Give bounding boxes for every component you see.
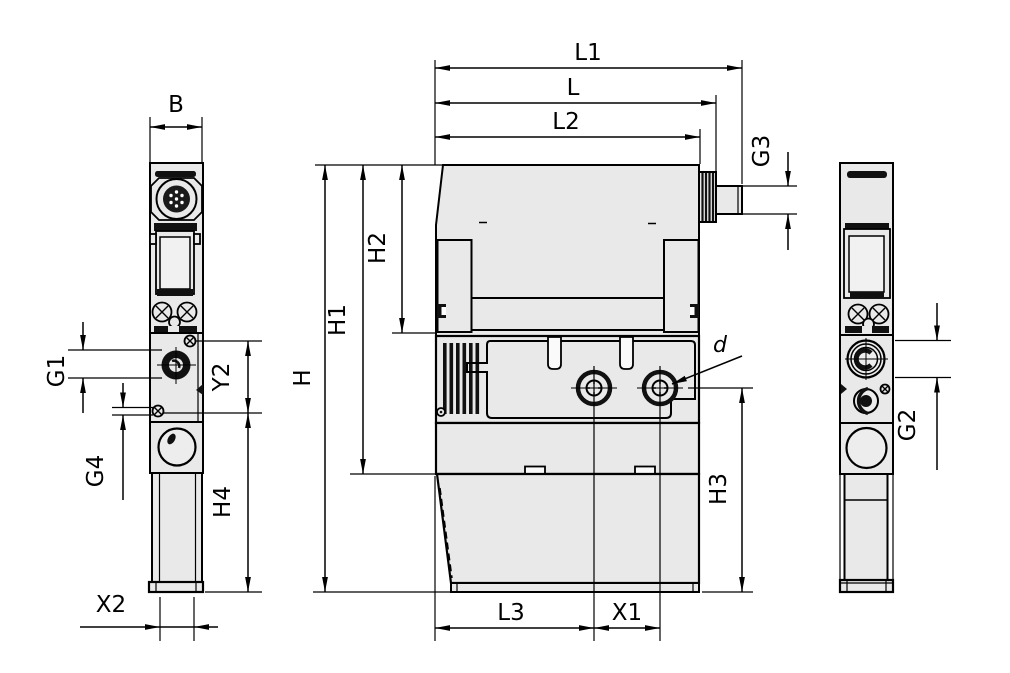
dim-label-h1: H1 — [325, 304, 351, 336]
cable-gland — [699, 172, 742, 222]
right-lower-body — [845, 474, 888, 580]
left-foot — [149, 582, 203, 592]
right-round-port — [847, 428, 887, 468]
right-side-view — [840, 163, 893, 592]
lower-tab-left — [525, 467, 545, 475]
right-top-slot — [847, 171, 887, 178]
dim-label-l1: L1 — [574, 40, 601, 66]
left-view-band — [154, 223, 197, 231]
dim-label-h4: H4 — [210, 486, 236, 518]
front-center-strip — [472, 298, 665, 330]
front-view — [436, 165, 742, 592]
panel-notch-right — [620, 337, 633, 369]
dim-label-g1: G1 — [44, 355, 70, 387]
front-right-block — [664, 240, 699, 332]
dim-label-l3: L3 — [497, 600, 524, 626]
technical-dimension-drawing: B G1 G4 Y2 H4 X2 — [0, 0, 1010, 673]
dim-label-h3: H3 — [706, 473, 732, 505]
drawing-canvas: B G1 G4 Y2 H4 X2 — [0, 0, 1010, 673]
dim-label-h: H — [290, 369, 316, 386]
dim-label-y2: Y2 — [209, 363, 235, 393]
front-left-block — [438, 240, 472, 332]
left-display-window — [150, 231, 200, 296]
dim-label-x1: X1 — [612, 600, 642, 626]
mount-hole-bottom — [153, 406, 164, 417]
dim-label-g4: G4 — [83, 455, 109, 487]
right-display-window — [844, 229, 890, 298]
dim-label-g3: G3 — [749, 135, 775, 167]
right-foot — [840, 580, 893, 592]
panel-notch-left — [548, 337, 561, 369]
dim-label-x2: X2 — [96, 592, 126, 618]
right-view-dimensions: G2 — [895, 303, 951, 470]
lower-tab-right — [635, 467, 655, 475]
m12-connector — [151, 178, 202, 220]
dim-label-l: L — [567, 75, 580, 101]
left-view-top-slot — [155, 171, 196, 177]
front-base-strip — [451, 583, 699, 592]
dim-label-b: B — [168, 92, 184, 118]
dim-label-l2: L2 — [552, 109, 579, 135]
mount-hole-top — [185, 336, 196, 347]
dim-label-g2: G2 — [895, 409, 921, 441]
left-round-port — [159, 429, 196, 466]
dim-label-h2: H2 — [365, 232, 391, 264]
dim-label-d: d — [713, 333, 728, 358]
